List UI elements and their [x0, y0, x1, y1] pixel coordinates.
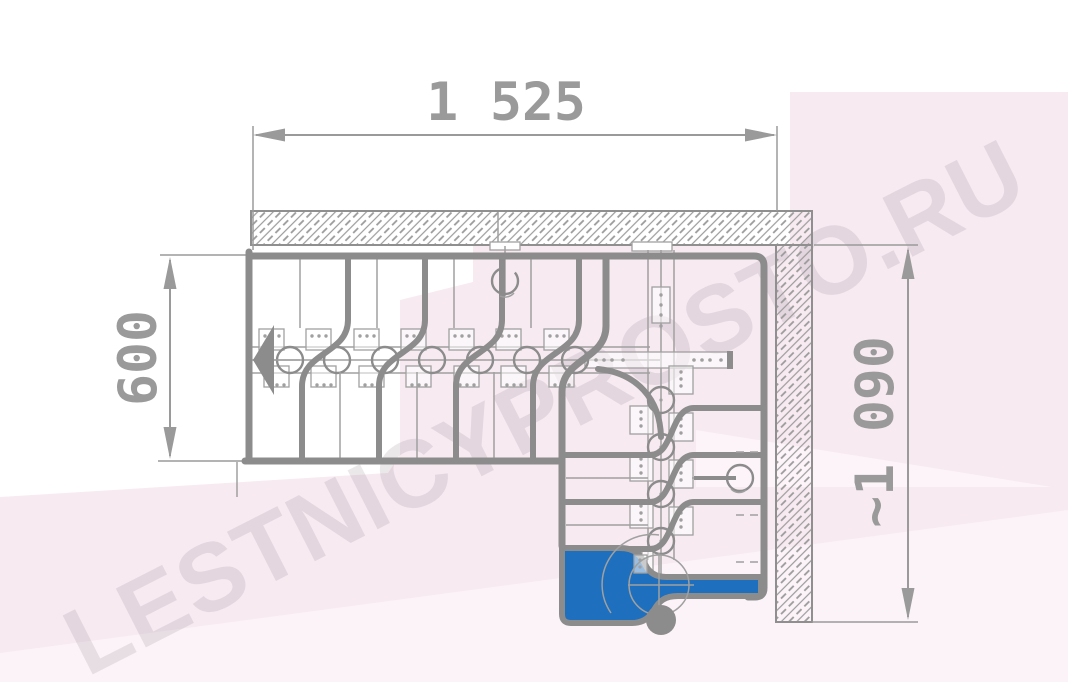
winder-flight-step-edges	[566, 408, 762, 562]
dimension-top-label: 1 525	[426, 72, 586, 133]
beam-end-cap	[727, 351, 733, 369]
arrow-right-icon	[745, 129, 777, 142]
support-post-icon	[646, 605, 676, 635]
dimension-left-label: 600	[108, 310, 169, 406]
arrow-down-icon	[902, 588, 915, 620]
top-wall	[251, 211, 812, 245]
arrow-up-icon	[902, 247, 915, 279]
arrow-down-icon	[164, 427, 177, 459]
dimension-right-label: ~1 090	[845, 336, 906, 527]
staircase-plan-drawing: 1 525 600 ~1 090	[0, 0, 1068, 682]
upper-flight-modules	[259, 329, 588, 387]
arrow-left-icon	[253, 129, 285, 142]
dimension-left: 600	[108, 255, 246, 461]
staircase-plan-page: { "dimensions": { "top": "1 525", "left"…	[0, 0, 1068, 682]
upper-flight-step-edges	[300, 256, 579, 461]
dimension-right: ~1 090	[812, 245, 918, 622]
wall-mount-plate-right	[632, 242, 672, 251]
right-wall	[776, 245, 812, 622]
spine-beam	[585, 351, 733, 369]
arrow-up-icon	[164, 257, 177, 289]
